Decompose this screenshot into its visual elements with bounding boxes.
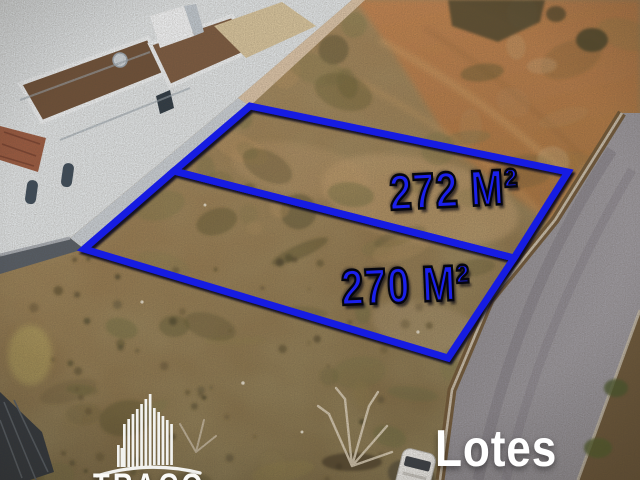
brand-name: TRAÇO (93, 469, 206, 480)
lot-area-label-lower: 270 M² (340, 257, 471, 313)
caption-lotes: Lotes (435, 423, 557, 475)
lot-area-label-upper: 272 M² (388, 161, 520, 218)
aerial-lot-advert-photo: 272 M² 270 M² Lotes TRAÇO (0, 0, 640, 480)
